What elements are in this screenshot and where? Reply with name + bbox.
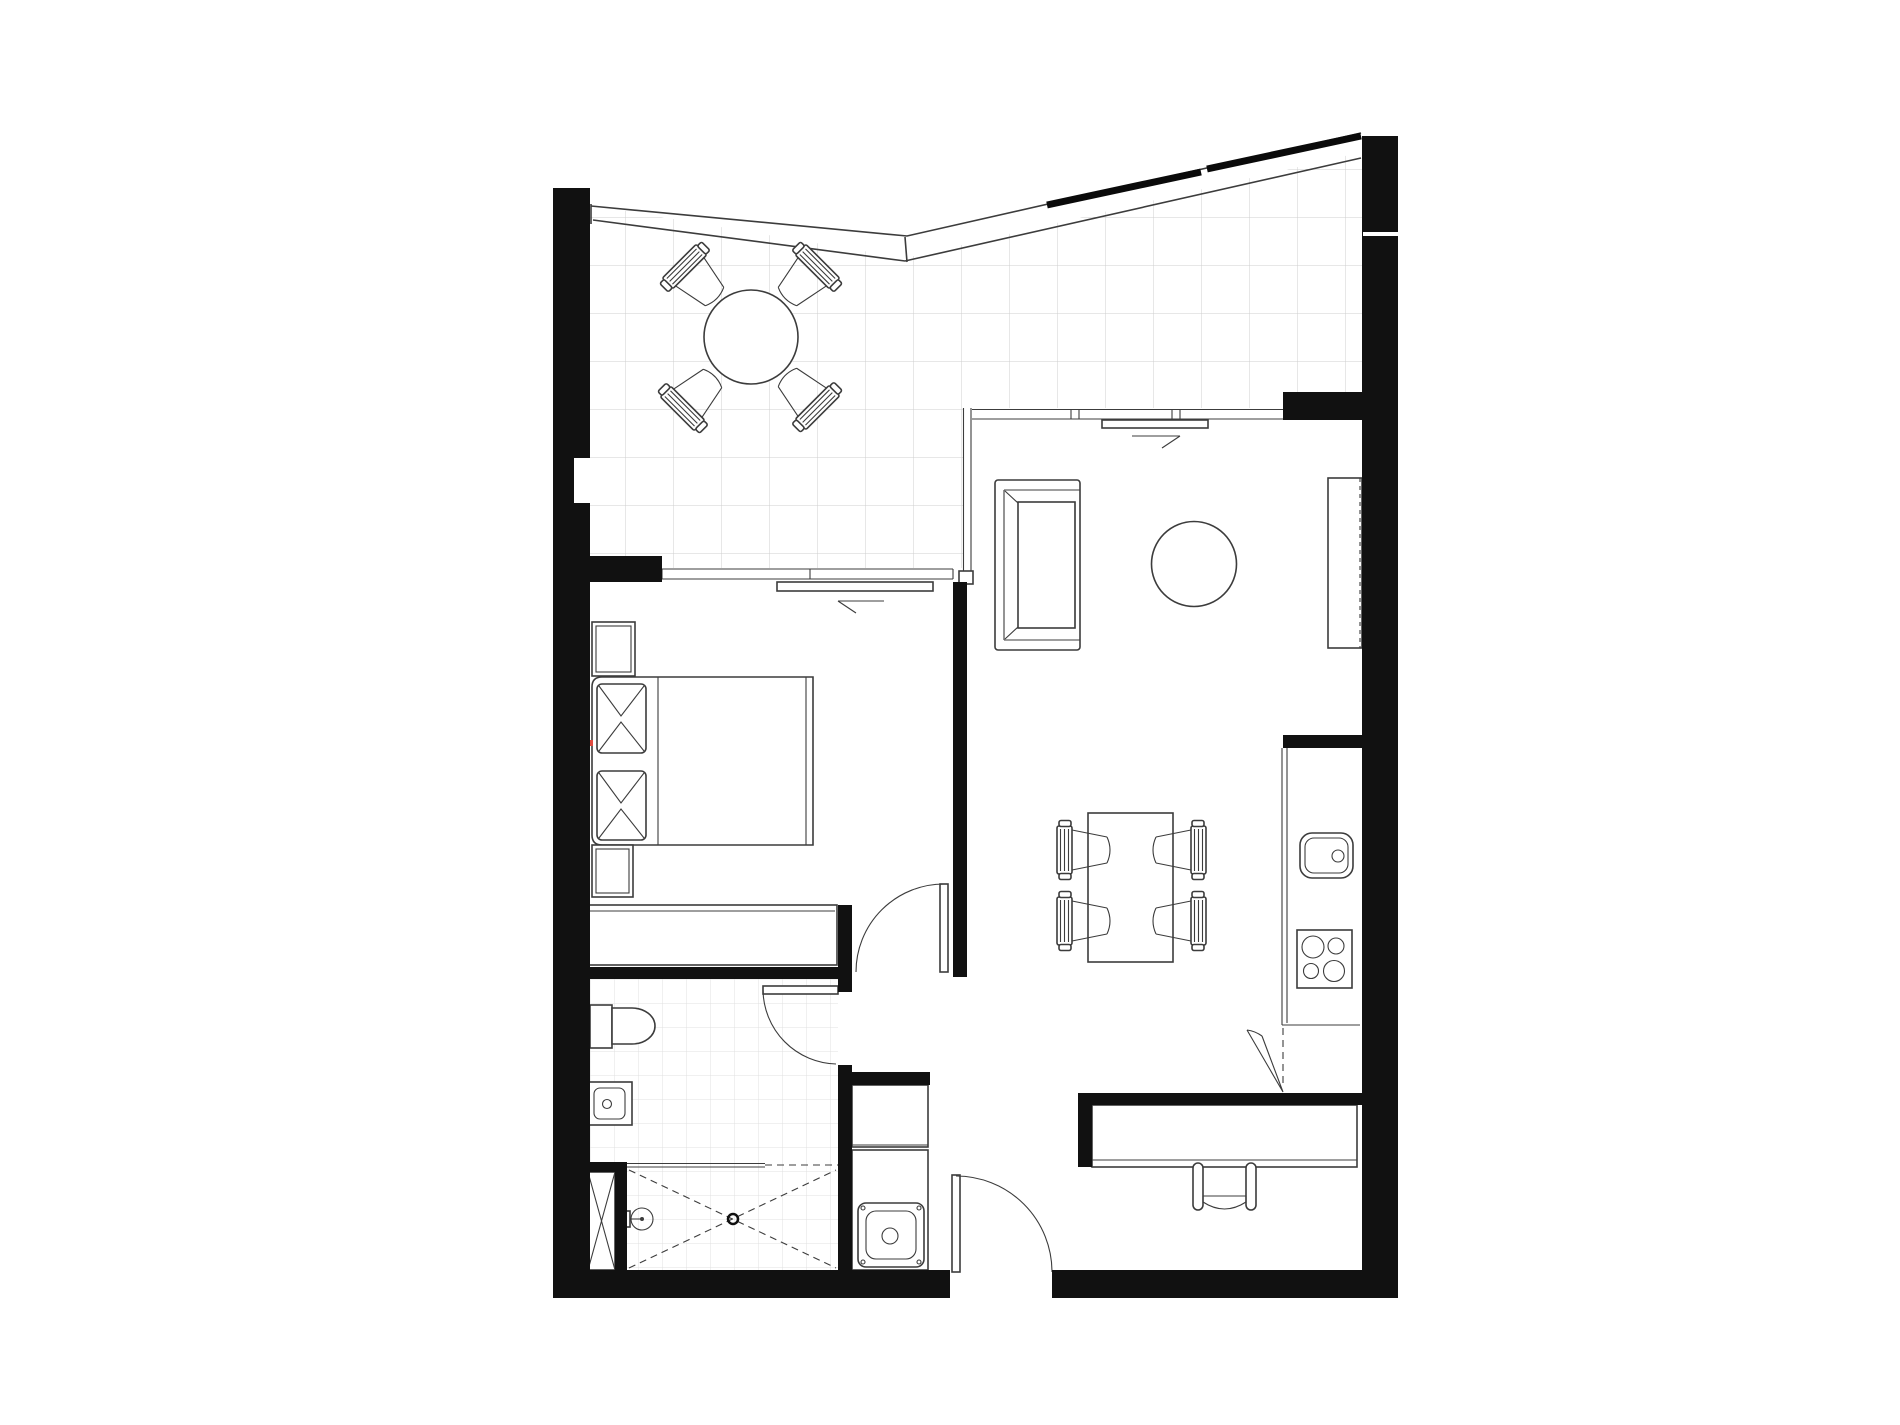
pillow xyxy=(597,684,646,753)
sliding-panel xyxy=(1102,420,1208,428)
door-swing-arc xyxy=(856,884,944,972)
wall-duct-side xyxy=(615,1172,627,1270)
floor-plan-drawing xyxy=(0,0,1900,1425)
door-swing-arc xyxy=(956,1176,1052,1272)
door-leaf xyxy=(763,986,838,994)
wall-bedroom-living xyxy=(953,582,967,977)
kitchen-sink xyxy=(1300,833,1353,878)
slider-arrow-left xyxy=(838,601,884,613)
wall-bathroom-north xyxy=(588,967,852,979)
toilet xyxy=(590,1005,655,1048)
pillow xyxy=(597,771,646,840)
door-leaf xyxy=(952,1175,960,1272)
living-room xyxy=(995,478,1362,962)
sliding-panel xyxy=(777,582,933,591)
duct-shaft xyxy=(588,1172,615,1270)
bedroom xyxy=(583,622,948,972)
wall-joint-notch xyxy=(574,458,590,503)
corner-glass-panel xyxy=(964,408,972,578)
wall-bathroom-east-lower xyxy=(838,1065,852,1270)
wall-laundry-top xyxy=(850,1072,930,1085)
wardrobe xyxy=(588,905,837,965)
balcony-round-table xyxy=(704,290,798,384)
wall-east xyxy=(1362,136,1398,1298)
corner-cabinet xyxy=(1247,1028,1283,1092)
washbasin xyxy=(588,1082,632,1125)
bedroom-balcony-slider xyxy=(662,569,953,613)
desk-chair xyxy=(1193,1163,1256,1210)
slider-arrow-right xyxy=(1132,436,1180,448)
tall-cabinet xyxy=(852,1085,928,1147)
wall-joint-line xyxy=(1363,232,1398,236)
wall-stub-kitchen xyxy=(1283,735,1362,748)
floor-plan-page xyxy=(0,0,1900,1425)
desk xyxy=(1092,1105,1357,1167)
nightstand xyxy=(592,622,635,676)
desk-edge-top xyxy=(1078,1093,1362,1105)
sofa xyxy=(995,480,1080,650)
wall-bathroom-east-upper xyxy=(838,905,852,992)
round-rug xyxy=(1152,522,1237,607)
wall-south-right xyxy=(1052,1270,1398,1298)
laundry-sink xyxy=(858,1203,924,1267)
laundry-closet xyxy=(852,1085,928,1270)
entry-swing-door xyxy=(952,1175,1052,1272)
kitchen xyxy=(1247,748,1360,1092)
wall-stub-bedroom-balcony xyxy=(590,556,662,582)
nightstand xyxy=(592,845,633,897)
desk-area xyxy=(1092,1105,1357,1210)
hob-cooktop xyxy=(1297,930,1352,988)
tv-cabinet xyxy=(1328,478,1362,648)
wall-west xyxy=(553,188,590,1270)
bedroom-swing-door xyxy=(856,884,948,972)
wall-stub-living-balcony xyxy=(1283,392,1362,420)
wall-south-left xyxy=(553,1270,950,1298)
wall-duct-top xyxy=(588,1162,627,1172)
balcony-tile-floor xyxy=(590,152,1362,568)
door-leaf xyxy=(940,884,948,972)
